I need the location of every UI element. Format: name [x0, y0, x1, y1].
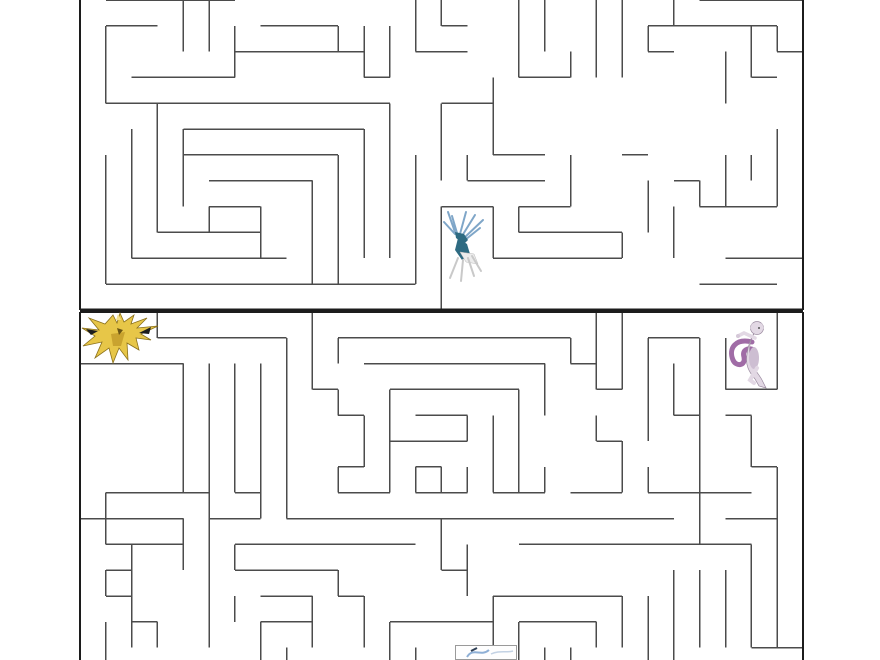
mewtwo-arm [738, 333, 755, 338]
mewtwo-hand [736, 334, 740, 338]
mewtwo-belly [749, 347, 759, 369]
maze-bottom [80, 312, 803, 660]
maze-worksheet-page [0, 0, 880, 660]
mystery-sprite [455, 645, 517, 660]
xerneas-sprite [442, 210, 487, 283]
mewtwo-sprite [724, 320, 779, 391]
mewtwo-eye [758, 327, 760, 329]
zapdos-sprite [81, 312, 159, 364]
